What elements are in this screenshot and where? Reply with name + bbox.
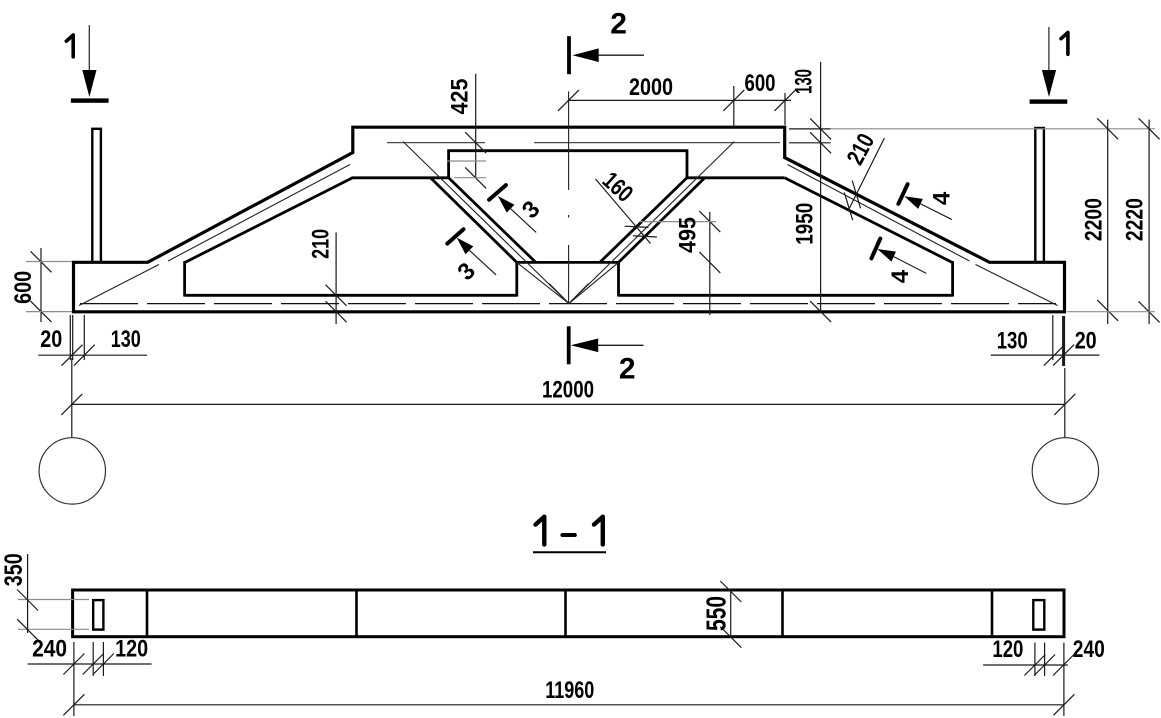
svg-text:425: 425 (446, 79, 473, 115)
svg-text:550: 550 (700, 596, 731, 631)
svg-text:12000: 12000 (542, 377, 594, 404)
svg-text:130: 130 (111, 326, 141, 353)
svg-text:210: 210 (308, 229, 335, 259)
svg-text:120: 120 (115, 635, 148, 662)
svg-text:3: 3 (452, 257, 481, 286)
svg-text:350: 350 (0, 553, 28, 586)
svg-text:120: 120 (992, 636, 1023, 663)
svg-text:2200: 2200 (1080, 198, 1107, 241)
svg-text:4: 4 (887, 269, 914, 283)
svg-text:11960: 11960 (545, 677, 594, 704)
svg-text:2220: 2220 (1122, 198, 1149, 241)
svg-text:1950: 1950 (792, 203, 819, 245)
svg-text:600: 600 (745, 70, 776, 97)
svg-text:2: 2 (619, 352, 636, 385)
svg-text:130: 130 (997, 327, 1028, 354)
svg-text:600: 600 (10, 271, 37, 304)
svg-text:2000: 2000 (629, 74, 673, 101)
svg-text:210: 210 (842, 129, 880, 169)
svg-text:2: 2 (610, 8, 627, 41)
svg-text:130: 130 (790, 69, 817, 94)
svg-text:20: 20 (1075, 327, 1097, 354)
svg-text:20: 20 (40, 326, 62, 353)
svg-text:240: 240 (32, 636, 67, 663)
svg-text:240: 240 (1073, 636, 1105, 663)
svg-text:160: 160 (597, 167, 638, 208)
svg-text:3: 3 (517, 196, 546, 225)
svg-text:4: 4 (929, 191, 956, 205)
svg-text:495: 495 (674, 217, 701, 253)
